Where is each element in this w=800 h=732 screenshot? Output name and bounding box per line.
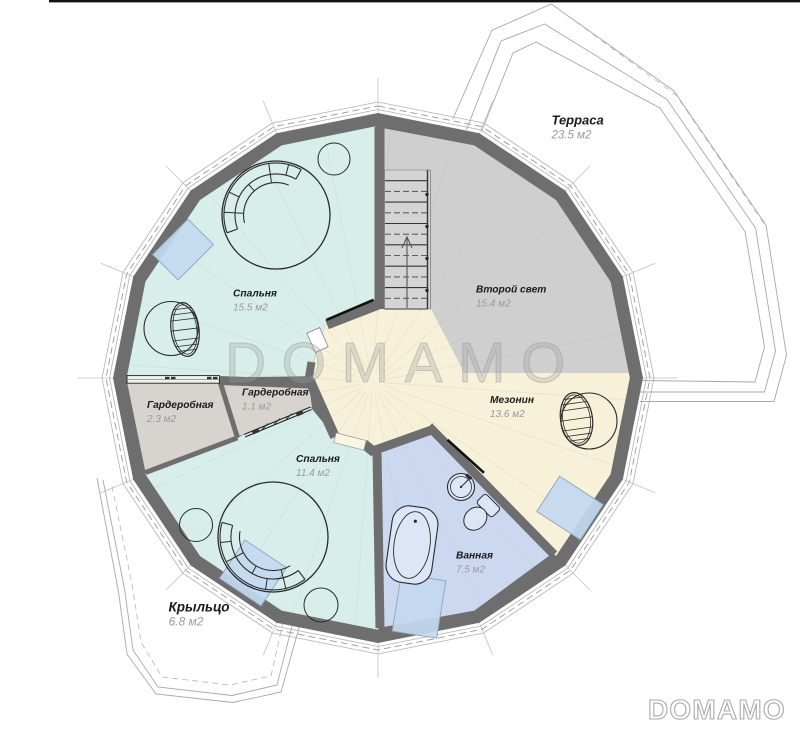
svg-text:7.5 м2: 7.5 м2 [456, 565, 486, 576]
svg-text:Крыльцо: Крыльцо [169, 600, 230, 615]
svg-text:23.5 м2: 23.5 м2 [551, 130, 592, 142]
svg-text:Спальня: Спальня [296, 454, 340, 465]
svg-text:2.3 м2: 2.3 м2 [146, 414, 177, 425]
svg-text:Мезонин: Мезонин [490, 395, 534, 406]
svg-text:11.4 м2: 11.4 м2 [296, 468, 330, 479]
svg-text:6.8 м2: 6.8 м2 [169, 615, 204, 629]
svg-text:DOMAMO: DOMAMO [648, 694, 786, 725]
svg-text:13.6 м2: 13.6 м2 [490, 409, 525, 420]
svg-text:1.1 м2: 1.1 м2 [242, 402, 272, 413]
svg-text:Гардеробная: Гардеробная [147, 399, 214, 411]
svg-text:Терраса: Терраса [552, 113, 604, 128]
svg-text:Ванная: Ванная [456, 551, 493, 562]
svg-text:DOMAMO: DOMAMO [225, 331, 581, 395]
svg-text:Спальня: Спальня [233, 289, 277, 300]
svg-text:15.5 м2: 15.5 м2 [233, 303, 268, 314]
svg-text:Второй свет: Второй свет [476, 285, 546, 296]
svg-text:15.4 м2: 15.4 м2 [476, 299, 511, 310]
